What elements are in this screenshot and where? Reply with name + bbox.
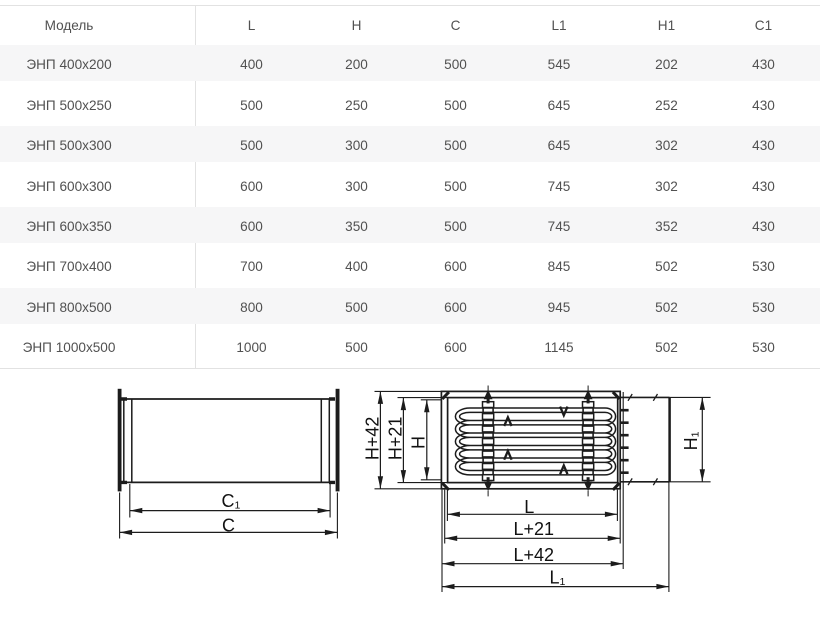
svg-text:H+42: H+42 [362,417,382,461]
svg-text:L+21: L+21 [514,519,555,539]
svg-text:C: C [222,515,235,535]
svg-text:H+21: H+21 [385,417,405,461]
svg-text:L+42: L+42 [514,545,555,565]
svg-text:L: L [524,497,534,517]
svg-text:C1: C1 [222,491,241,512]
svg-text:H: H [409,436,429,449]
svg-text:H1: H1 [681,431,702,450]
svg-text:L1: L1 [550,568,566,589]
